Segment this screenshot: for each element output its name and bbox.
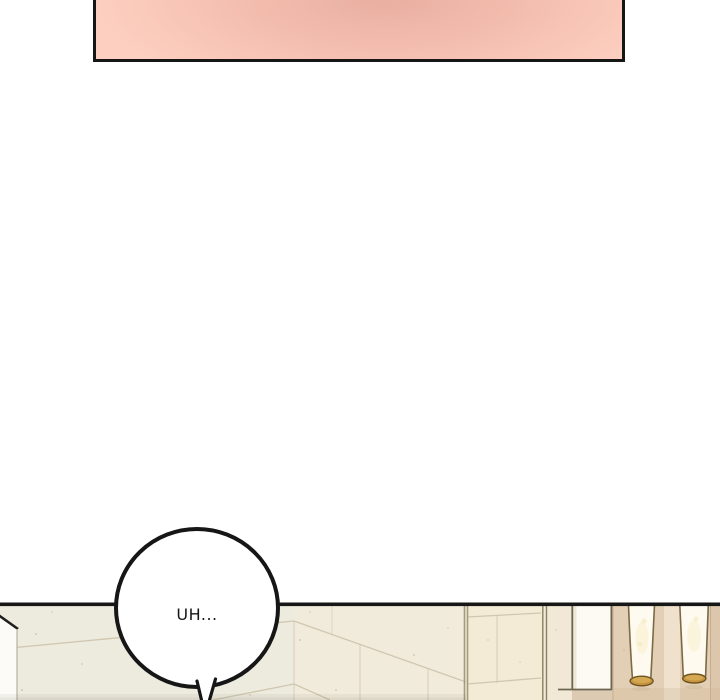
speech-bubble-text: UH...: [137, 602, 257, 626]
pendant-lamp-right: [680, 605, 709, 689]
panel-top-border: [0, 603, 720, 607]
bottom-panel: [0, 0, 720, 700]
pendant-lamp-left: [629, 605, 655, 691]
left-door: [0, 616, 18, 700]
comic-page: UH...: [0, 0, 720, 700]
